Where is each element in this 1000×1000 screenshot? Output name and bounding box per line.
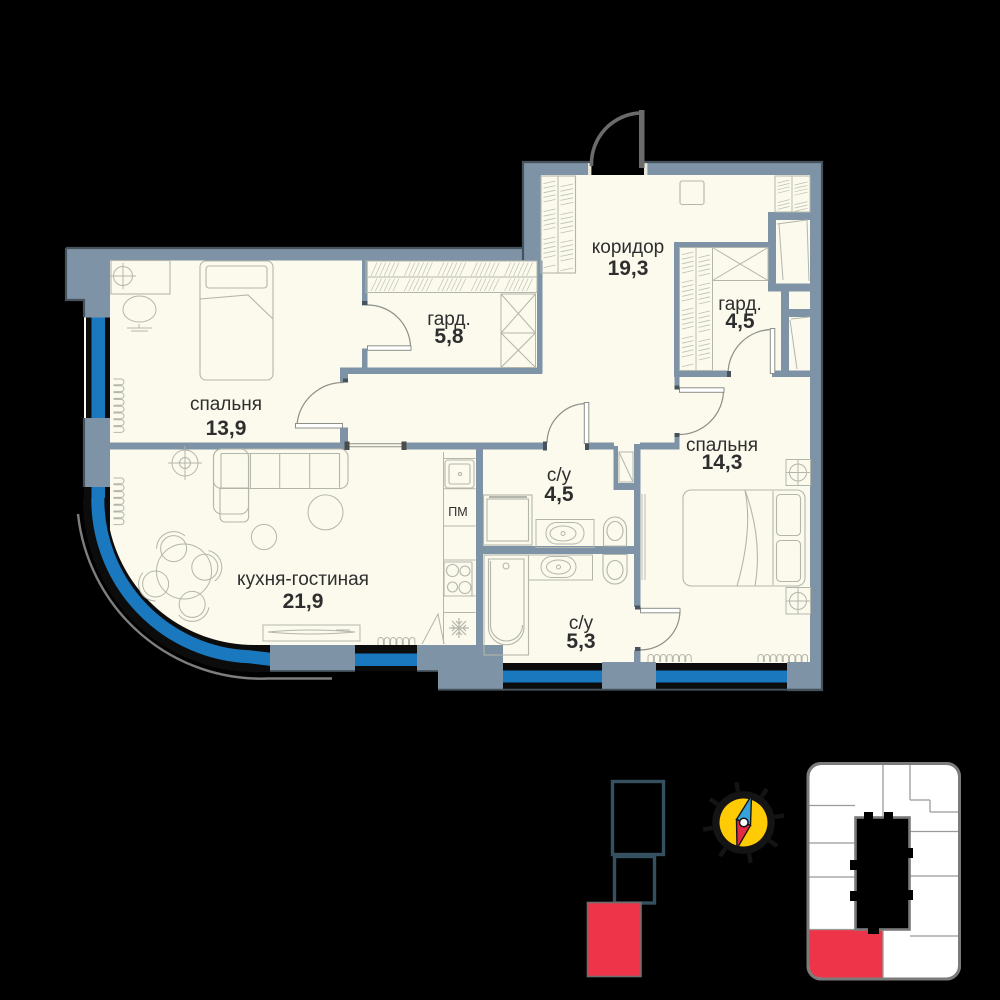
svg-text:ПМ: ПМ [448,505,467,519]
svg-text:спальня: спальня [190,394,262,415]
svg-text:13,9: 13,9 [206,417,247,440]
svg-text:4,5: 4,5 [544,483,574,506]
svg-text:5,3: 5,3 [566,630,595,653]
svg-text:5,8: 5,8 [434,325,464,348]
svg-text:коридор: коридор [592,237,665,258]
svg-text:21,9: 21,9 [283,590,324,613]
svg-text:14,3: 14,3 [702,451,743,474]
svg-text:19,3: 19,3 [608,257,649,280]
svg-text:4,5: 4,5 [725,310,755,333]
svg-text:кухня-гостиная: кухня-гостиная [237,569,369,590]
